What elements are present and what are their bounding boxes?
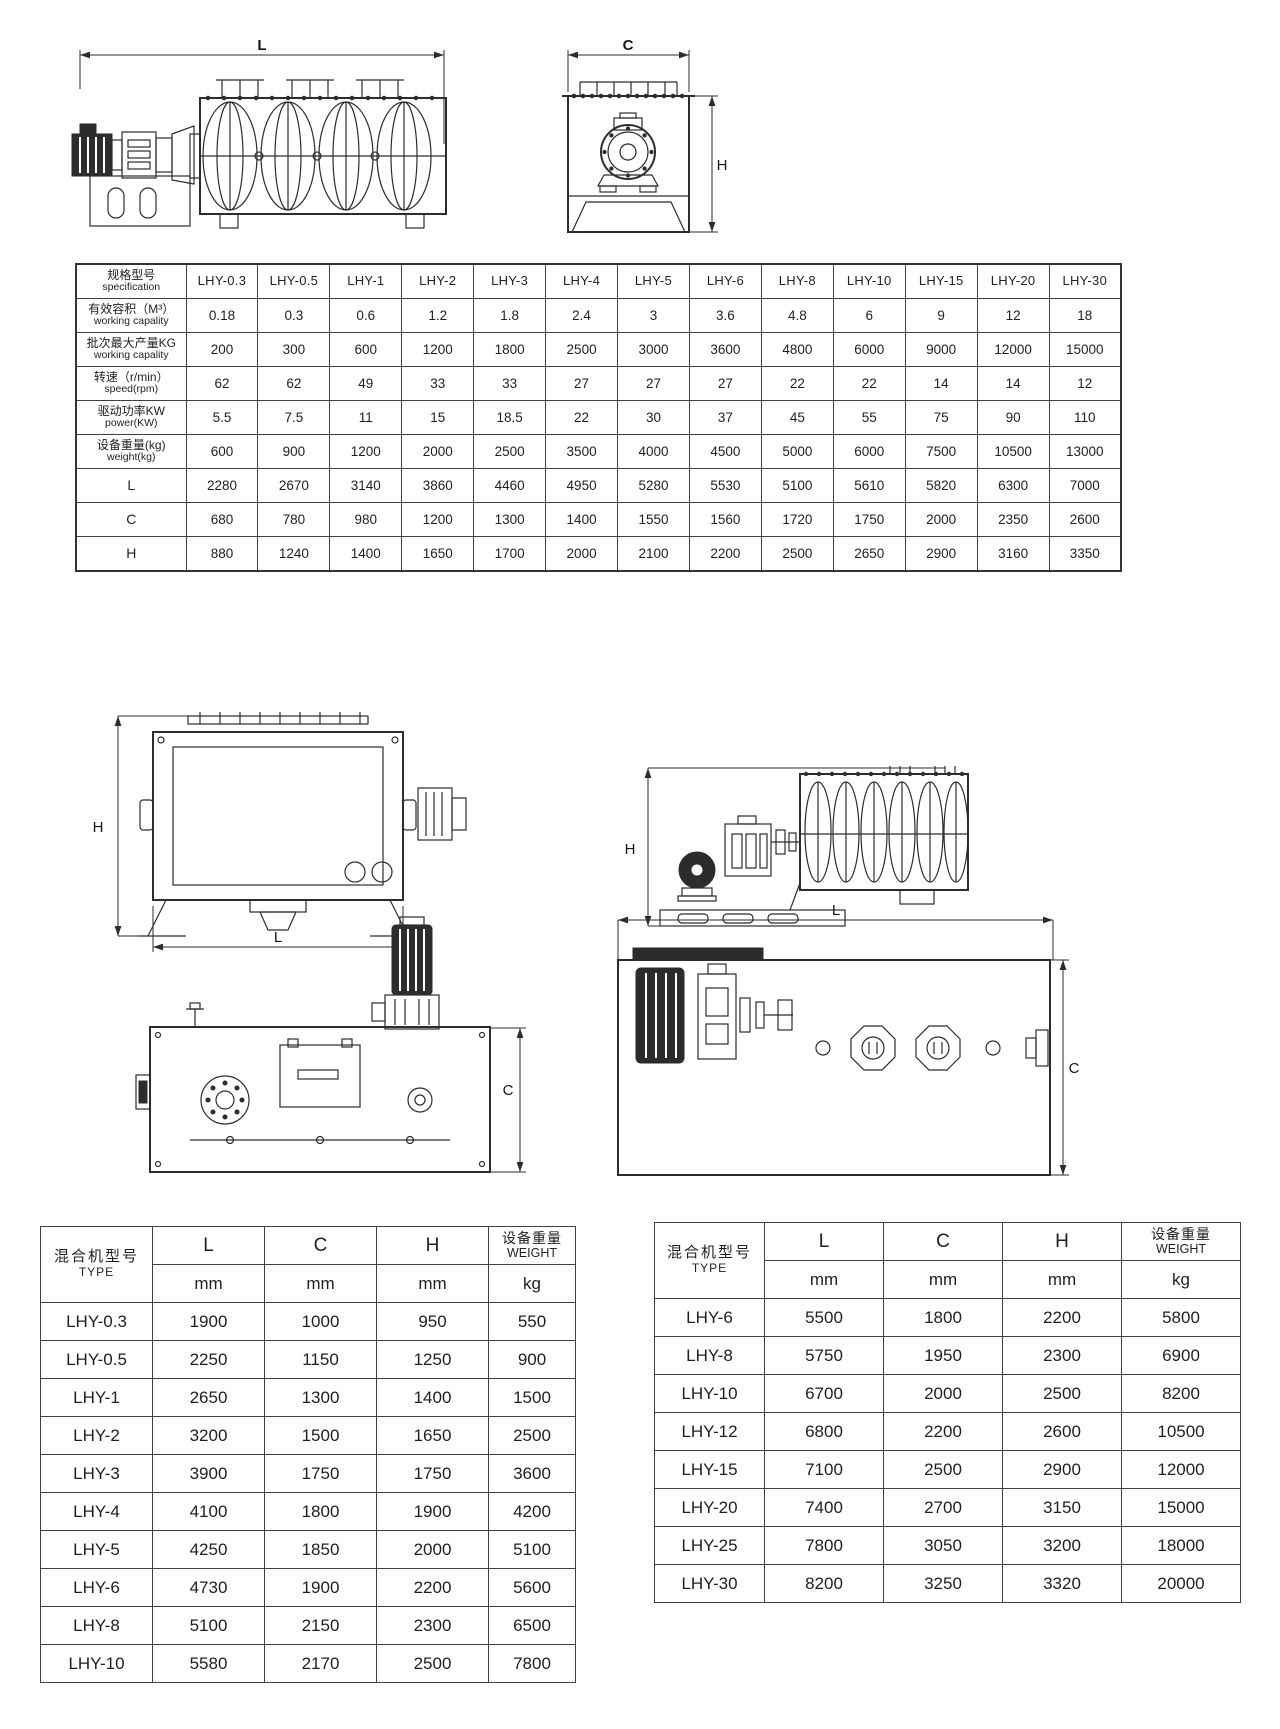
- weight-header-text: WEIGHT: [489, 1246, 575, 1260]
- spec-value-text: 45: [762, 410, 833, 425]
- spec-model-header-text: LHY-3: [474, 274, 545, 289]
- col-header-text: C: [884, 1231, 1002, 1252]
- value-cell: 1650: [377, 1417, 489, 1455]
- model-cell-text: LHY-1: [41, 1388, 152, 1407]
- spec-value: 3350: [1049, 537, 1121, 572]
- value-cell: 7800: [765, 1527, 884, 1565]
- spec-value-text: 6300: [978, 478, 1049, 493]
- spec-value-text: 7.5: [258, 410, 329, 425]
- spec-value: 880: [186, 537, 258, 572]
- spec-row-label: 转速（r/min）speed(rpm): [76, 367, 186, 401]
- spec-value: 7500: [905, 435, 977, 469]
- body-plan: [136, 1003, 490, 1172]
- spec-value-text: 9000: [906, 342, 977, 357]
- dimension-table-right: 混合机型号TYPELCH设备重量WEIGHTmmmmmmkgLHY-655001…: [654, 1222, 1241, 1603]
- spec-row-label-text: speed(rpm): [77, 384, 186, 396]
- spec-value: 1400: [546, 503, 618, 537]
- dim-label-H: H: [93, 819, 104, 836]
- model-cell: LHY-10: [41, 1645, 153, 1683]
- unit-cell: mm: [765, 1261, 884, 1299]
- model-cell: LHY-30: [655, 1565, 765, 1603]
- spec-value-text: 1800: [474, 342, 545, 357]
- value-cell-text: 3200: [1003, 1536, 1121, 1555]
- spec-value-text: 780: [258, 512, 329, 527]
- model-cell-text: LHY-25: [655, 1536, 764, 1555]
- col-header-text: H: [377, 1235, 488, 1256]
- spec-row-label-text: 转速（r/min）: [77, 371, 186, 384]
- value-cell-text: 2200: [1003, 1308, 1121, 1327]
- value-cell-text: 6800: [765, 1422, 883, 1441]
- value-cell-text: 1900: [265, 1578, 376, 1597]
- value-cell-text: 1800: [265, 1502, 376, 1521]
- spec-value-text: 55: [834, 410, 905, 425]
- value-cell-text: 15000: [1122, 1498, 1240, 1517]
- spec-value-text: 62: [258, 376, 329, 391]
- spec-model-header-text: LHY-4: [546, 274, 617, 289]
- spec-value: 6000: [833, 435, 905, 469]
- dimension-C: C: [1050, 960, 1080, 1175]
- value-cell: 5800: [1122, 1299, 1241, 1337]
- spec-header-text: specification: [77, 282, 186, 294]
- model-cell: LHY-8: [41, 1607, 153, 1645]
- spec-value-text: 9: [906, 308, 977, 323]
- value-cell: 3050: [884, 1527, 1003, 1565]
- spec-value: 5280: [618, 469, 690, 503]
- value-cell-text: 2000: [377, 1540, 488, 1559]
- spec-value-text: 14: [906, 376, 977, 391]
- value-cell: 2600: [1003, 1413, 1122, 1451]
- spec-value: 15: [402, 401, 474, 435]
- unit-cell-text: mm: [1003, 1270, 1121, 1289]
- spec-header-text: 规格型号: [77, 269, 186, 282]
- spec-value: 2500: [546, 333, 618, 367]
- spec-value-text: 980: [330, 512, 401, 527]
- model-cell-text: LHY-6: [655, 1308, 764, 1327]
- spec-value-text: 4500: [690, 444, 761, 459]
- value-cell-text: 2150: [265, 1616, 376, 1635]
- spec-value-text: 3600: [690, 342, 761, 357]
- spec-value-text: 33: [402, 376, 473, 391]
- spec-value-text: 1400: [330, 546, 401, 561]
- spec-value: 3160: [977, 537, 1049, 572]
- value-cell: 3600: [489, 1455, 576, 1493]
- spec-value: 1650: [402, 537, 474, 572]
- spec-model-header-text: LHY-10: [834, 274, 905, 289]
- value-cell: 4100: [153, 1493, 265, 1531]
- spec-value: 6000: [833, 333, 905, 367]
- spec-value-text: 3860: [402, 478, 473, 493]
- spec-value: 1400: [330, 537, 402, 572]
- spec-value-text: 12: [1050, 376, 1120, 391]
- spec-value-text: 15: [402, 410, 473, 425]
- spec-value-text: 3.6: [690, 308, 761, 323]
- spec-value-text: 18: [1050, 308, 1120, 323]
- spec-value: 37: [689, 401, 761, 435]
- dimension-table-left: 混合机型号TYPELCH设备重量WEIGHTmmmmmmkgLHY-0.3190…: [40, 1226, 576, 1683]
- spec-value: 3: [618, 299, 690, 333]
- spec-value: 14: [905, 367, 977, 401]
- model-cell: LHY-8: [655, 1337, 765, 1375]
- spec-value: 2.4: [546, 299, 618, 333]
- value-cell-text: 7800: [765, 1536, 883, 1555]
- spec-value-text: 0.6: [330, 308, 401, 323]
- value-cell: 2200: [377, 1569, 489, 1607]
- spec-model-header-text: LHY-0.3: [187, 274, 258, 289]
- spec-row-label-text: weight(kg): [77, 452, 186, 464]
- model-cell-text: LHY-2: [41, 1426, 152, 1445]
- spec-value: 4800: [761, 333, 833, 367]
- value-cell: 2300: [1003, 1337, 1122, 1375]
- spec-value: 22: [546, 401, 618, 435]
- spec-row-label-text: 设备重量(kg): [77, 439, 186, 452]
- spec-value-text: 14: [978, 376, 1049, 391]
- value-cell: 10500: [1122, 1413, 1241, 1451]
- spec-value: 3860: [402, 469, 474, 503]
- spec-row-label-text: H: [77, 546, 186, 562]
- spec-value-text: 4460: [474, 478, 545, 493]
- spec-model-header: LHY-0.5: [258, 264, 330, 299]
- spec-model-header: LHY-2: [402, 264, 474, 299]
- value-cell-text: 2500: [489, 1426, 575, 1445]
- value-cell-text: 5580: [153, 1654, 264, 1673]
- spec-value-text: 4800: [762, 342, 833, 357]
- spec-row-label: 驱动功率KWpower(KW): [76, 401, 186, 435]
- value-cell-text: 8200: [1122, 1384, 1240, 1403]
- spec-value-text: 6000: [834, 444, 905, 459]
- value-cell: 2200: [1003, 1299, 1122, 1337]
- spec-value: 2670: [258, 469, 330, 503]
- col-header-text: L: [765, 1231, 883, 1252]
- spec-value-text: 1750: [834, 512, 905, 527]
- value-cell-text: 2700: [884, 1498, 1002, 1517]
- spec-row-label-text: 驱动功率KW: [77, 405, 186, 418]
- spec-value-text: 3140: [330, 478, 401, 493]
- value-cell: 12000: [1122, 1451, 1241, 1489]
- value-cell-text: 3320: [1003, 1574, 1121, 1593]
- spec-value-text: 11: [330, 410, 401, 425]
- value-cell-text: 1400: [377, 1388, 488, 1407]
- spec-value: 4.8: [761, 299, 833, 333]
- unit-cell-text: mm: [153, 1274, 264, 1293]
- housing: [562, 82, 695, 232]
- spec-model-header-text: LHY-2: [402, 274, 473, 289]
- spec-value: 33: [402, 367, 474, 401]
- value-cell-text: 2200: [377, 1578, 488, 1597]
- spec-value: 1200: [330, 435, 402, 469]
- mixer-body: [140, 712, 416, 900]
- spec-value-text: 2650: [834, 546, 905, 561]
- value-cell-text: 1950: [884, 1346, 1002, 1365]
- spec-value: 2350: [977, 503, 1049, 537]
- weight-header-text: 设备重量: [489, 1231, 575, 1247]
- value-cell: 5100: [153, 1607, 265, 1645]
- value-cell-text: 7100: [765, 1460, 883, 1479]
- value-cell: 4200: [489, 1493, 576, 1531]
- value-cell-text: 2900: [1003, 1460, 1121, 1479]
- value-cell-text: 3250: [884, 1574, 1002, 1593]
- spec-table: 规格型号specificationLHY-0.3LHY-0.5LHY-1LHY-…: [75, 263, 1122, 572]
- spec-model-header-text: LHY-30: [1050, 274, 1120, 289]
- model-cell-text: LHY-4: [41, 1502, 152, 1521]
- motor-drive: [72, 124, 194, 184]
- spec-value: 1700: [474, 537, 546, 572]
- spec-value-text: 12000: [978, 342, 1049, 357]
- spec-value-text: 2000: [546, 546, 617, 561]
- spec-value-text: 2280: [187, 478, 258, 493]
- dimension-C: C: [490, 1028, 526, 1172]
- value-cell-text: 4730: [153, 1578, 264, 1597]
- spec-value: 5610: [833, 469, 905, 503]
- value-cell-text: 2500: [884, 1460, 1002, 1479]
- value-cell: 1400: [377, 1379, 489, 1417]
- page: L: [0, 0, 1280, 1729]
- weight-header-text: WEIGHT: [1122, 1242, 1240, 1256]
- spec-value-text: 2200: [690, 546, 761, 561]
- value-cell: 7100: [765, 1451, 884, 1489]
- spec-value-text: 1400: [546, 512, 617, 527]
- spec-header: 规格型号specification: [76, 264, 186, 299]
- spec-value-text: 18.5: [474, 410, 545, 425]
- value-cell: 7800: [489, 1645, 576, 1683]
- unit-cell: mm: [265, 1265, 377, 1303]
- drawing-side-view: L: [70, 34, 462, 234]
- value-cell-text: 2250: [153, 1350, 264, 1369]
- spec-value-text: 4.8: [762, 308, 833, 323]
- spec-value-text: 3000: [618, 342, 689, 357]
- spec-value-text: 1720: [762, 512, 833, 527]
- dim-label-C: C: [503, 1082, 514, 1099]
- value-cell-text: 5750: [765, 1346, 883, 1365]
- value-cell: 2200: [884, 1413, 1003, 1451]
- spec-value: 2500: [474, 435, 546, 469]
- value-cell-text: 2500: [377, 1654, 488, 1673]
- spec-value-text: 110: [1050, 410, 1120, 425]
- spec-value-text: 1240: [258, 546, 329, 561]
- value-cell-text: 2170: [265, 1654, 376, 1673]
- value-cell: 3320: [1003, 1565, 1122, 1603]
- spec-value-text: 5280: [618, 478, 689, 493]
- spec-value-text: 4950: [546, 478, 617, 493]
- spec-value: 1240: [258, 537, 330, 572]
- spec-model-header-text: LHY-15: [906, 274, 977, 289]
- spec-value-text: 6: [834, 308, 905, 323]
- spec-value: 300: [258, 333, 330, 367]
- spec-value: 12: [1049, 367, 1121, 401]
- spec-value-text: 13000: [1050, 444, 1120, 459]
- spec-value: 2500: [761, 537, 833, 572]
- spec-value: 110: [1049, 401, 1121, 435]
- spec-value-text: 1300: [474, 512, 545, 527]
- value-cell: 20000: [1122, 1565, 1241, 1603]
- spec-value: 9: [905, 299, 977, 333]
- spec-value: 0.3: [258, 299, 330, 333]
- drawing-plan-left: C: [120, 915, 535, 1183]
- spec-value-text: 62: [187, 376, 258, 391]
- model-cell: LHY-4: [41, 1493, 153, 1531]
- value-cell: 3150: [1003, 1489, 1122, 1527]
- unit-cell: mm: [1003, 1261, 1122, 1299]
- model-cell-text: LHY-10: [655, 1384, 764, 1403]
- spec-value: 2280: [186, 469, 258, 503]
- dim-label-C: C: [623, 37, 634, 54]
- spec-value-text: 15000: [1050, 342, 1120, 357]
- value-cell: 2500: [884, 1451, 1003, 1489]
- spec-value: 9000: [905, 333, 977, 367]
- spec-value: 200: [186, 333, 258, 367]
- value-cell: 4250: [153, 1531, 265, 1569]
- value-cell: 5600: [489, 1569, 576, 1607]
- spec-value-text: 2100: [618, 546, 689, 561]
- spec-value: 18: [1049, 299, 1121, 333]
- spec-value: 1800: [474, 333, 546, 367]
- value-cell: 15000: [1122, 1489, 1241, 1527]
- value-cell-text: 3050: [884, 1536, 1002, 1555]
- value-cell-text: 4250: [153, 1540, 264, 1559]
- spec-value: 5.5: [186, 401, 258, 435]
- spec-value: 5530: [689, 469, 761, 503]
- spec-value: 49: [330, 367, 402, 401]
- dimension-H: H: [689, 96, 727, 232]
- value-cell: 550: [489, 1303, 576, 1341]
- spec-value: 4000: [618, 435, 690, 469]
- spec-row-label-text: working capality: [77, 350, 186, 362]
- spec-value-text: 200: [187, 342, 258, 357]
- spec-value: 2650: [833, 537, 905, 572]
- type-header-text: TYPE: [41, 1266, 152, 1279]
- spec-value: 90: [977, 401, 1049, 435]
- spec-value-text: 30: [618, 410, 689, 425]
- spec-row-label-text: working capality: [77, 316, 186, 328]
- spec-value-text: 27: [618, 376, 689, 391]
- spec-value: 6: [833, 299, 905, 333]
- spec-value: 980: [330, 503, 402, 537]
- value-cell: 2500: [489, 1417, 576, 1455]
- value-cell-text: 3150: [1003, 1498, 1121, 1517]
- spec-value: 15000: [1049, 333, 1121, 367]
- spec-row-label-text: power(KW): [77, 418, 186, 430]
- spec-value: 1.8: [474, 299, 546, 333]
- spec-model-header: LHY-3: [474, 264, 546, 299]
- spec-value-text: 2900: [906, 546, 977, 561]
- spec-value: 12000: [977, 333, 1049, 367]
- spec-value-text: 27: [690, 376, 761, 391]
- spec-value: 680: [186, 503, 258, 537]
- value-cell-text: 2000: [884, 1384, 1002, 1403]
- gearbox: [725, 816, 800, 876]
- spec-model-header: LHY-30: [1049, 264, 1121, 299]
- value-cell: 2170: [265, 1645, 377, 1683]
- spec-value: 3600: [689, 333, 761, 367]
- spec-value-text: 1650: [402, 546, 473, 561]
- model-cell-text: LHY-0.5: [41, 1350, 152, 1369]
- unit-cell-text: kg: [489, 1274, 575, 1293]
- spec-value-text: 1200: [402, 342, 473, 357]
- dim-label-H: H: [625, 841, 636, 858]
- col-header: C: [884, 1223, 1003, 1261]
- drum-body: [190, 96, 446, 214]
- spec-value-text: 2350: [978, 512, 1049, 527]
- spec-value: 11: [330, 401, 402, 435]
- value-cell: 5500: [765, 1299, 884, 1337]
- spec-value-text: 1.8: [474, 308, 545, 323]
- value-cell: 2500: [377, 1645, 489, 1683]
- col-header: L: [765, 1223, 884, 1261]
- value-cell: 5100: [489, 1531, 576, 1569]
- spec-value: 1200: [402, 503, 474, 537]
- spec-value: 7.5: [258, 401, 330, 435]
- dimension-H: H: [93, 716, 190, 936]
- type-header-text: 混合机型号: [655, 1245, 764, 1262]
- spec-value-text: 6000: [834, 342, 905, 357]
- value-cell: 1500: [489, 1379, 576, 1417]
- value-cell: 6700: [765, 1375, 884, 1413]
- spec-value: 62: [258, 367, 330, 401]
- value-cell: 6500: [489, 1607, 576, 1645]
- model-cell-text: LHY-6: [41, 1578, 152, 1597]
- value-cell: 2300: [377, 1607, 489, 1645]
- value-cell-text: 1750: [377, 1464, 488, 1483]
- spec-model-header-text: LHY-1: [330, 274, 401, 289]
- value-cell-text: 6900: [1122, 1346, 1240, 1365]
- model-cell: LHY-5: [41, 1531, 153, 1569]
- spec-value: 22: [761, 367, 833, 401]
- spec-row-label-text: L: [77, 478, 186, 494]
- spec-value-text: 1550: [618, 512, 689, 527]
- spec-value-text: 600: [187, 444, 258, 459]
- spec-model-header-text: LHY-8: [762, 274, 833, 289]
- value-cell-text: 1650: [377, 1426, 488, 1445]
- value-cell-text: 2650: [153, 1388, 264, 1407]
- value-cell-text: 4200: [489, 1502, 575, 1521]
- dim-label-H: H: [717, 157, 728, 174]
- value-cell: 2150: [265, 1607, 377, 1645]
- spec-value-text: 22: [546, 410, 617, 425]
- value-cell-text: 1800: [884, 1308, 1002, 1327]
- weight-header: 设备重量WEIGHT: [1122, 1223, 1241, 1261]
- model-cell-text: LHY-5: [41, 1540, 152, 1559]
- value-cell-text: 3900: [153, 1464, 264, 1483]
- spec-model-header: LHY-5: [618, 264, 690, 299]
- spec-row-label: 批次最大产量KGworking capality: [76, 333, 186, 367]
- motor-plan: [636, 964, 793, 1063]
- vertical-motor: [372, 917, 439, 1029]
- value-cell-text: 6700: [765, 1384, 883, 1403]
- col-header-text: H: [1003, 1231, 1121, 1252]
- spec-value: 2000: [546, 537, 618, 572]
- value-cell: 7400: [765, 1489, 884, 1527]
- value-cell: 1900: [153, 1303, 265, 1341]
- model-cell: LHY-25: [655, 1527, 765, 1565]
- value-cell: 2500: [1003, 1375, 1122, 1413]
- drawing-plan-right: L: [608, 898, 1083, 1183]
- spec-value: 3.6: [689, 299, 761, 333]
- unit-cell-text: mm: [884, 1270, 1002, 1289]
- value-cell-text: 7400: [765, 1498, 883, 1517]
- spec-value-text: 2670: [258, 478, 329, 493]
- spec-value-text: 37: [690, 410, 761, 425]
- value-cell-text: 3600: [489, 1464, 575, 1483]
- value-cell: 1300: [265, 1379, 377, 1417]
- spec-value: 0.6: [330, 299, 402, 333]
- value-cell: 900: [489, 1341, 576, 1379]
- spec-model-header: LHY-10: [833, 264, 905, 299]
- spec-value: 2000: [905, 503, 977, 537]
- spec-model-header: LHY-6: [689, 264, 761, 299]
- value-cell: 3900: [153, 1455, 265, 1493]
- spec-model-header: LHY-20: [977, 264, 1049, 299]
- model-cell: LHY-15: [655, 1451, 765, 1489]
- spec-value-text: 4000: [618, 444, 689, 459]
